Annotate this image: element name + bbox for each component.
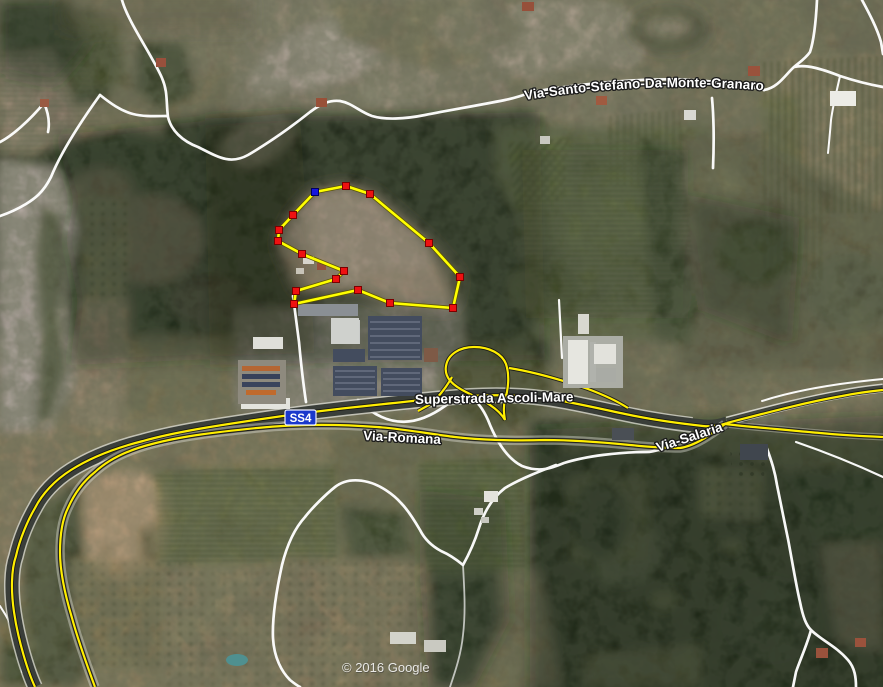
svg-text:SS4: SS4	[290, 413, 312, 425]
svg-text:© 2016 Google: © 2016 Google	[342, 660, 430, 675]
svg-text:Superstrada Ascoli-Mare: Superstrada Ascoli-Mare	[415, 389, 574, 407]
